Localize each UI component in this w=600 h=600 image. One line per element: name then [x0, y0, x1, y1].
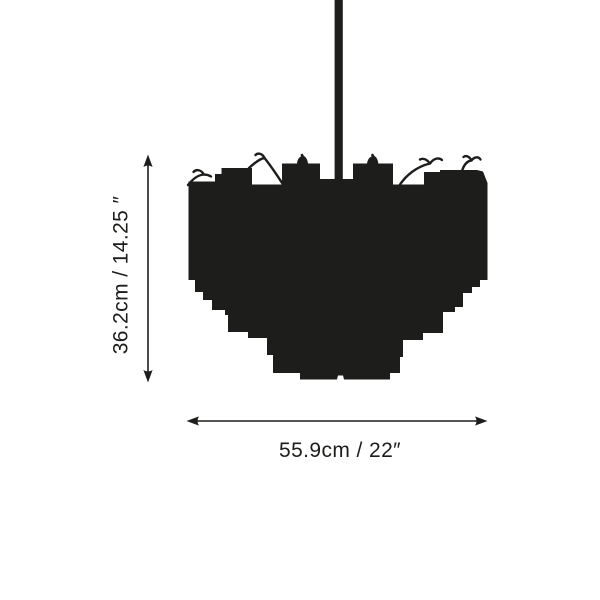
width-dimension-label: 55.9cm / 22″ [279, 439, 401, 462]
arrow-down-icon [143, 370, 152, 383]
arrow-left-icon [187, 416, 200, 425]
product-dimension-diagram: 36.2cm / 14.25 ″ 55.9cm / 22″ [0, 0, 600, 600]
wire-right-squiggle [462, 156, 481, 171]
arrow-right-icon [475, 416, 488, 425]
chandelier-dimension-diagram: 36.2cm / 14.25 ″ 55.9cm / 22″ [0, 0, 600, 600]
chandelier-silhouette [188, 0, 488, 380]
width-dimension: 55.9cm / 22″ [187, 416, 488, 462]
wire-left-arc [249, 154, 284, 186]
chandelier-body-shape [189, 0, 488, 380]
height-dimension-label: 36.2cm / 14.25 ″ [110, 196, 133, 355]
arrow-up-icon [143, 155, 152, 168]
height-dimension: 36.2cm / 14.25 ″ [110, 155, 153, 383]
